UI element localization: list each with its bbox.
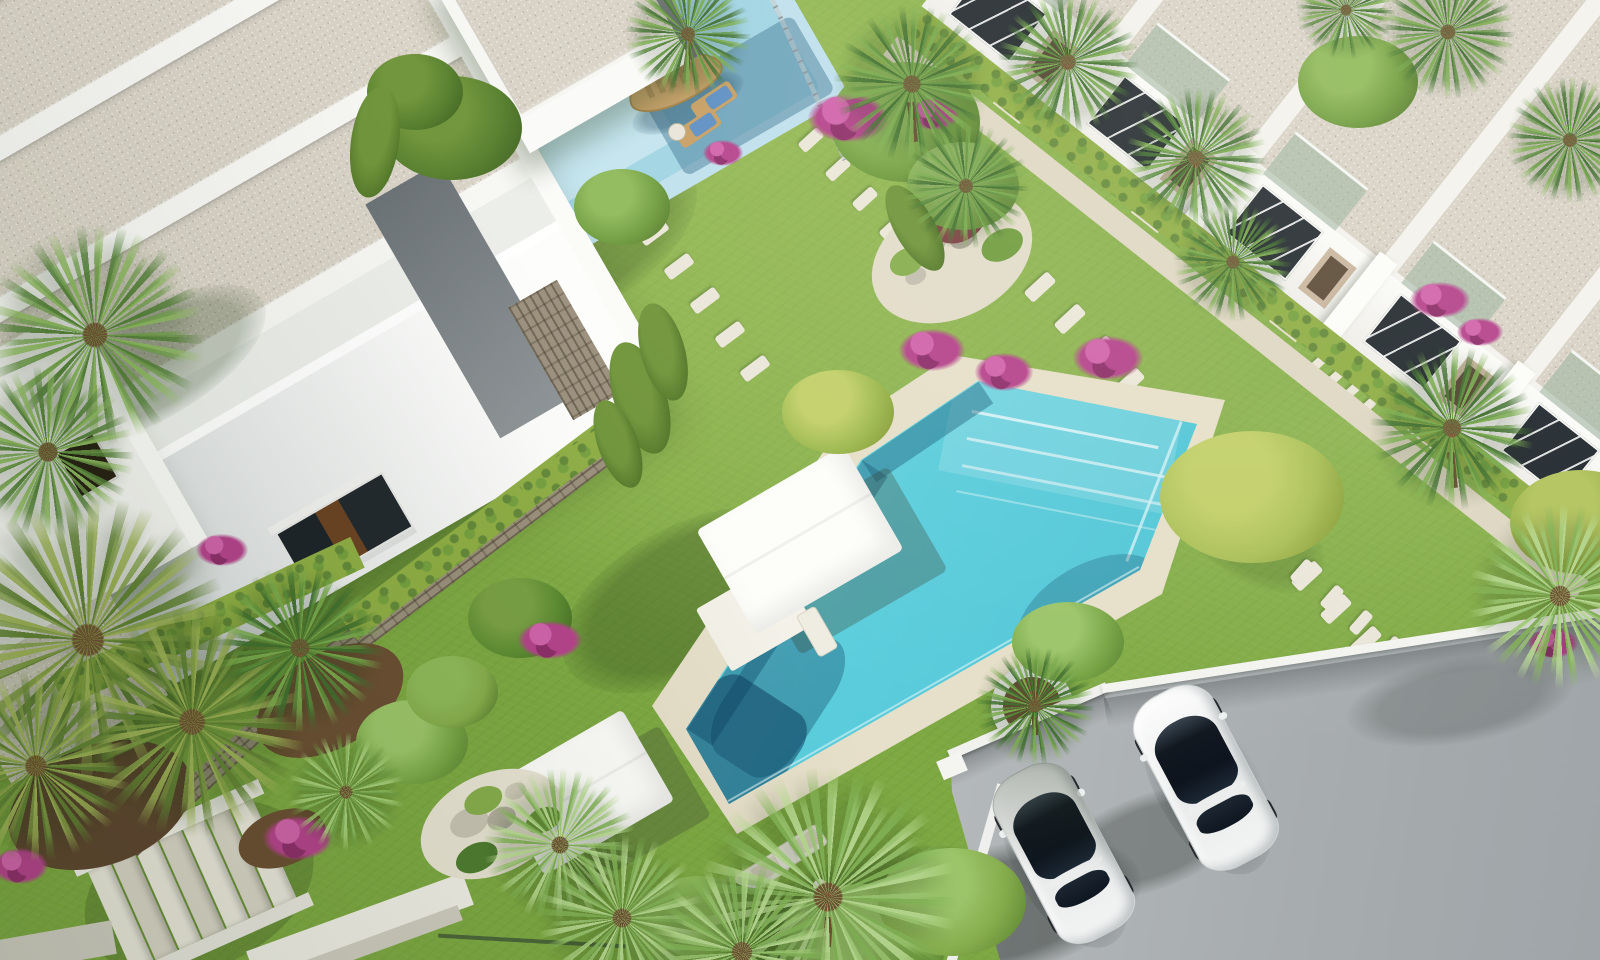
light-vignette bbox=[0, 0, 1600, 960]
aerial-render-canvas bbox=[0, 0, 1600, 960]
